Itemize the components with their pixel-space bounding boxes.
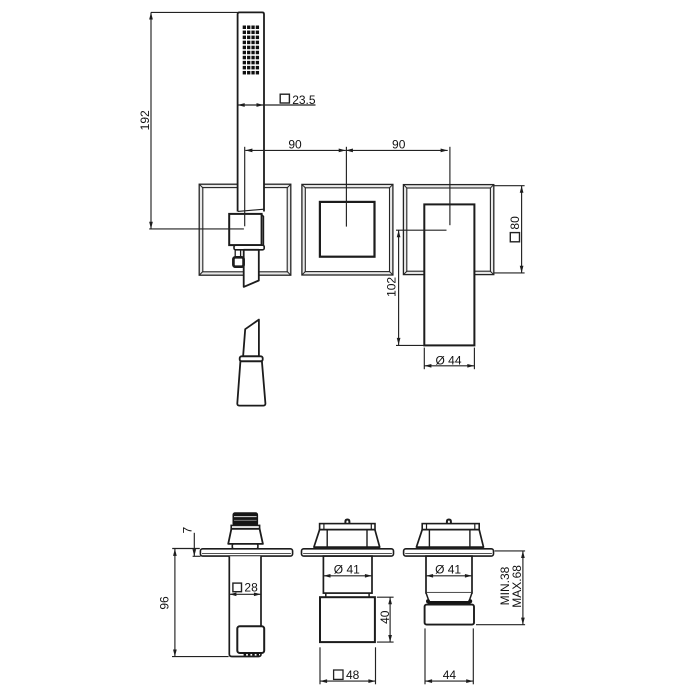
svg-text:102: 102	[385, 277, 399, 297]
svg-text:90: 90	[288, 137, 302, 151]
svg-text:48: 48	[346, 668, 360, 682]
svg-text:Ø 41: Ø 41	[334, 562, 360, 576]
svg-text:23.5: 23.5	[292, 93, 316, 107]
svg-text:Ø 41: Ø 41	[435, 562, 461, 576]
svg-text:96: 96	[158, 596, 172, 610]
svg-text:90: 90	[392, 137, 406, 151]
svg-text:7: 7	[181, 526, 195, 533]
svg-text:28: 28	[244, 581, 258, 595]
svg-text:MAX.68: MAX.68	[510, 565, 524, 608]
svg-text:44: 44	[443, 668, 457, 682]
svg-text:192: 192	[138, 110, 152, 130]
svg-text:40: 40	[378, 610, 392, 624]
svg-text:Ø 44: Ø 44	[436, 353, 462, 367]
svg-text:80: 80	[508, 216, 522, 230]
